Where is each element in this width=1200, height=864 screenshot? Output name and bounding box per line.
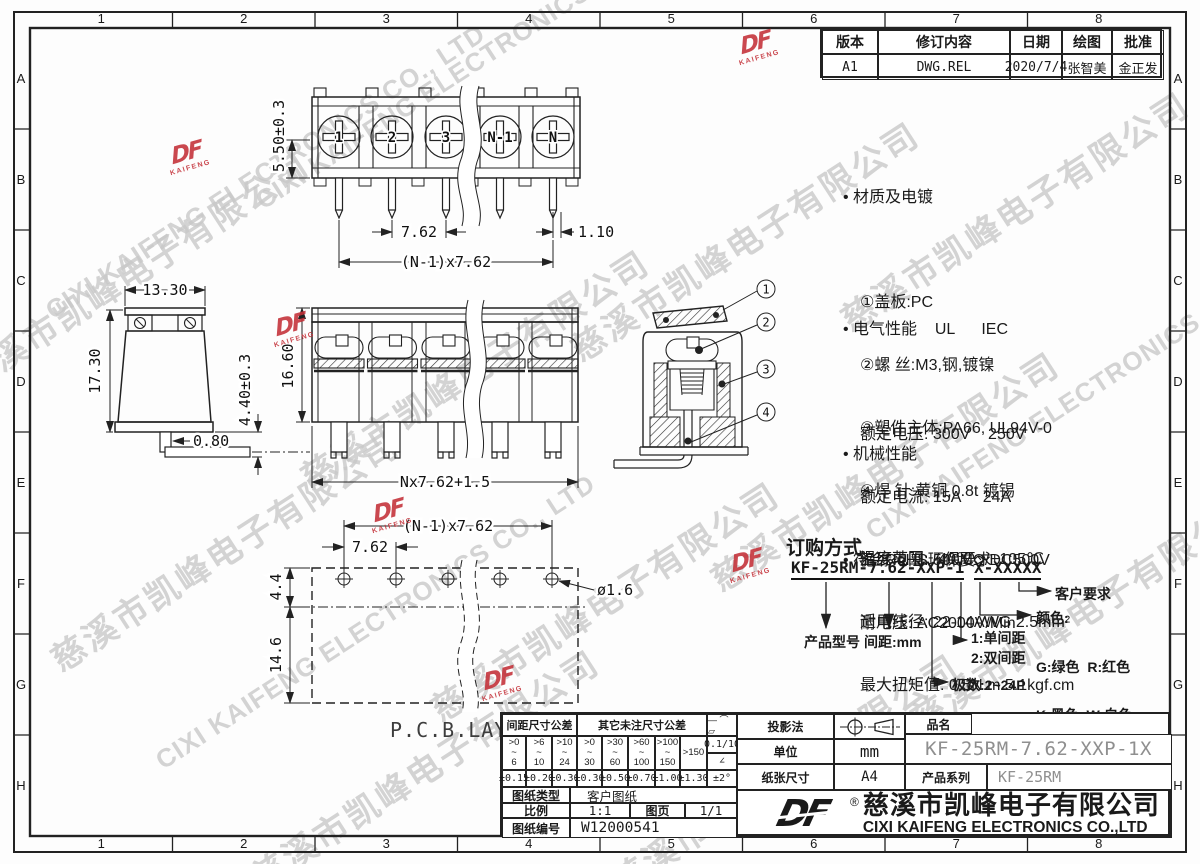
color-option: G:绿色 R:红色 (1036, 659, 1132, 675)
series-value: KF-25RM (987, 764, 1172, 790)
revision-version: A1 (822, 54, 878, 80)
projection-label: 投影法 (737, 714, 834, 739)
revision-header: 绘图 (1062, 30, 1112, 54)
frame-row-label: H (1170, 735, 1186, 836)
revision-drawn-by: 张智美 (1062, 54, 1112, 80)
tol-range: >6~10 (526, 736, 552, 770)
tol-symbols: — ⌒ ▱ (707, 714, 737, 736)
drawing-number-label: 图纸编号 (502, 818, 570, 838)
frame-col-label: 5 (600, 836, 743, 852)
revision-header: 批准 (1112, 30, 1164, 54)
frame-column-labels-top: 12345678 (30, 11, 1170, 27)
frame-col-label: 7 (885, 11, 1028, 27)
tol-flatness: 0.1/10 (707, 736, 737, 753)
frame-col-label: 6 (743, 836, 886, 852)
tol-value: ±0.30 (577, 770, 602, 787)
ordering-title: 订购方式 (786, 533, 862, 560)
frame-row-label: F (13, 533, 29, 634)
ordering-label-pitch: 间距:mm (864, 632, 922, 652)
spec-title: • 电气性能 UL IEC (843, 319, 1050, 340)
frame-row-labels-left: ABCDEFGH (13, 28, 29, 836)
first-angle-projection-icon (838, 716, 902, 738)
tol-angle-symbol: ∠ (707, 753, 737, 770)
ordering-code: KF-25RM-7.62-XXP-1 X-XXXXX (791, 558, 1041, 577)
range-line: 24 (559, 758, 570, 768)
revision-table: 版本 修订内容 日期 绘图 批准 A1 DWG.REL 2020/7/4 张智美… (820, 28, 1162, 78)
frame-row-label: B (1170, 129, 1186, 230)
engineering-drawing-page: CIXI KAIFENG ELECTRONICS CO., LTD CIXI K… (0, 0, 1200, 864)
paper-size-value: A4 (834, 764, 905, 790)
range-line: 10 (534, 758, 545, 768)
frame-col-label: 1 (30, 11, 173, 27)
revision-date: 2020/7/4 (1010, 54, 1062, 80)
frame-col-label: 1 (30, 836, 173, 852)
frame-row-label: E (1170, 432, 1186, 533)
range-line: 30 (584, 758, 595, 768)
range-line: 60 (610, 758, 621, 768)
frame-col-label: 4 (458, 836, 601, 852)
scale-value: 1:1 (570, 803, 630, 818)
drawing-number-value: W12000541 (570, 818, 737, 838)
tol-value: ±0.15 (502, 770, 526, 787)
frame-col-label: 4 (458, 11, 601, 27)
drawing-type-label: 图纸类型 (502, 787, 570, 803)
frame-col-label: 2 (173, 836, 316, 852)
tol-other-title: 其它未注尺寸公差 (577, 714, 707, 736)
watermark-text: 慈溪市凯峰电子有限公司 (0, 138, 318, 401)
tol-range: >100~150 (655, 736, 680, 770)
ordering-label-double: 2:双间距 (971, 648, 1025, 668)
frame-col-label: 6 (743, 11, 886, 27)
revision-approved-by: 金正发 (1112, 54, 1164, 80)
frame-col-label: 7 (885, 836, 1028, 852)
frame-row-label: G (1170, 634, 1186, 735)
tol-value: ±0.20 (526, 770, 552, 787)
tol-value: ±1.30 (680, 770, 707, 787)
frame-row-label: E (13, 432, 29, 533)
ordering-label-single: 1:单间距 (971, 628, 1025, 648)
frame-col-label: 8 (1028, 11, 1171, 27)
frame-row-label: F (1170, 533, 1186, 634)
range-line: 6 (511, 758, 516, 768)
unit-label: 单位 (737, 739, 834, 764)
tol-angle-value: ±2° (707, 770, 737, 787)
ordering-label-poles: 极数:2~24P (952, 675, 1026, 695)
tol-range: >10~24 (552, 736, 577, 770)
company-name-cn: 慈溪市凯峰电子有限公司 (863, 792, 1160, 819)
registered-mark: ® (850, 795, 859, 809)
frame-row-label: H (13, 735, 29, 836)
company-logo: DF (754, 797, 850, 831)
tol-range: >0~30 (577, 736, 602, 770)
frame-row-labels-right: ABCDEFGH (1170, 28, 1186, 836)
projection-symbol (834, 714, 905, 739)
ordering-label-color-title: 颜色: (1036, 608, 1069, 628)
revision-header: 版本 (822, 30, 878, 54)
frame-row-label: G (13, 634, 29, 735)
tol-range-150: >150 (680, 736, 707, 770)
revision-header: 修订内容 (878, 30, 1010, 54)
ordering-label-model: 产品型号 (804, 632, 860, 652)
frame-column-labels-bottom: 12345678 (30, 836, 1170, 852)
company-block: DF ® 慈溪市凯峰电子有限公司 CIXI KAIFENG ELECTRONIC… (737, 790, 1172, 838)
scale-label: 比例 (502, 803, 570, 818)
tol-range: >60~100 (628, 736, 655, 770)
ordering-code-left: KF-25RM-7.62-XXP-1 (791, 558, 964, 580)
tol-value: ±0.30 (552, 770, 577, 787)
company-name-en: CIXI KAIFENG ELECTRONICS CO.,LTD (863, 820, 1160, 836)
revision-content: DWG.REL (878, 54, 1010, 80)
unit-value: mm (834, 739, 905, 764)
paper-size-label: 纸张尺寸 (737, 764, 834, 790)
tol-pitch-title: 间距尺寸公差 (502, 714, 577, 736)
range-line: 150 (660, 758, 676, 768)
frame-col-label: 3 (315, 11, 458, 27)
revision-header: 日期 (1010, 30, 1062, 54)
tol-value: ±1.00 (655, 770, 680, 787)
drawing-type-value: 客户图纸 (570, 787, 737, 803)
tol-value: ±0.70 (628, 770, 655, 787)
frame-col-label: 5 (600, 11, 743, 27)
frame-row-label: A (13, 28, 29, 129)
frame-col-label: 2 (173, 11, 316, 27)
part-name-label: 品名 (905, 714, 972, 734)
part-name-value: KF-25RM-7.62-XXP-1X (905, 734, 1172, 764)
page-label: 图页 (630, 803, 685, 818)
series-label: 产品系列 (905, 764, 987, 790)
tol-range: >30~60 (602, 736, 628, 770)
frame-row-label: A (1170, 28, 1186, 129)
logo-df-text: DF (774, 797, 830, 830)
frame-row-label: B (13, 129, 29, 230)
page-value: 1/1 (685, 803, 737, 818)
frame-row-label: D (13, 331, 29, 432)
ordering-code-right: X-XXXXX (974, 558, 1041, 580)
spec-title: • 材质及电镀 (843, 187, 1052, 208)
frame-row-label: C (1170, 230, 1186, 331)
ordering-label-customer: 客户要求 (1055, 584, 1111, 604)
frame-col-label: 3 (315, 836, 458, 852)
watermark-text: 慈溪市凯峰电子有限公司 (420, 468, 788, 731)
frame-row-label: D (1170, 331, 1186, 432)
tol-range: >0~6 (502, 736, 526, 770)
tol-value: ±0.50 (602, 770, 628, 787)
frame-row-label: C (13, 230, 29, 331)
title-block: 间距尺寸公差 其它未注尺寸公差 — ⌒ ▱ >0~6 >6~10 >10~24 … (500, 712, 1170, 836)
range-line: 100 (634, 758, 650, 768)
spec-title: • 机械性能 (843, 444, 1074, 465)
